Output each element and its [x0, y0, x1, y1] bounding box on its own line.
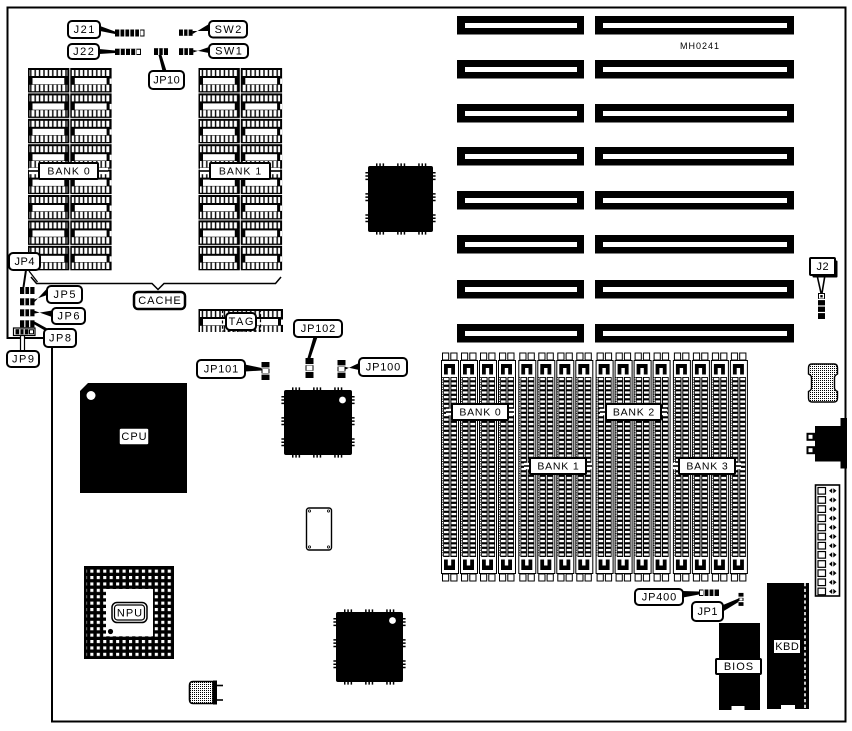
- svg-text:JP100: JP100: [366, 362, 401, 374]
- svg-text:BIOS: BIOS: [724, 661, 754, 673]
- svg-text:MH0241: MH0241: [680, 41, 720, 51]
- svg-text:JP5: JP5: [54, 289, 77, 301]
- svg-text:TAG: TAG: [229, 316, 255, 328]
- svg-text:J2: J2: [816, 261, 829, 273]
- svg-text:CACHE: CACHE: [138, 295, 182, 307]
- svg-text:BANK 0: BANK 0: [459, 407, 501, 419]
- svg-text:KBD: KBD: [775, 641, 799, 653]
- svg-text:JP6: JP6: [58, 311, 81, 323]
- svg-text:JP1: JP1: [698, 606, 718, 618]
- svg-text:JP9: JP9: [12, 354, 35, 366]
- svg-text:SW1: SW1: [215, 46, 243, 58]
- svg-text:SW2: SW2: [215, 24, 243, 36]
- svg-text:J22: J22: [73, 46, 95, 58]
- svg-text:CPU: CPU: [121, 431, 147, 443]
- svg-text:BANK 3: BANK 3: [686, 461, 728, 473]
- svg-text:J21: J21: [74, 24, 96, 36]
- svg-text:BANK 1: BANK 1: [537, 461, 579, 473]
- svg-text:JP10: JP10: [153, 75, 180, 87]
- svg-text:JP101: JP101: [204, 364, 239, 376]
- svg-text:BANK 0: BANK 0: [47, 166, 90, 178]
- svg-text:NPU: NPU: [117, 608, 143, 620]
- svg-text:BANK 2: BANK 2: [613, 407, 655, 419]
- svg-text:JP400: JP400: [642, 592, 677, 604]
- svg-text:JP102: JP102: [301, 323, 336, 335]
- svg-text:JP8: JP8: [49, 333, 72, 345]
- svg-text:JP4: JP4: [15, 256, 35, 268]
- svg-text:BANK 1: BANK 1: [219, 166, 262, 178]
